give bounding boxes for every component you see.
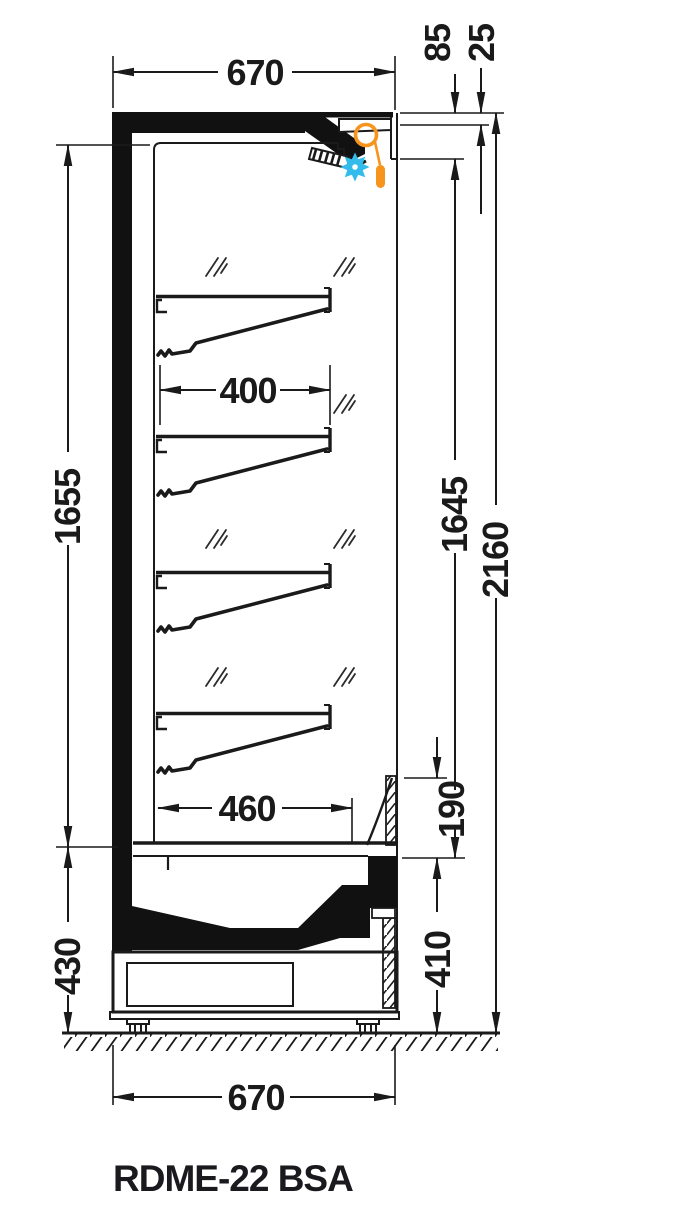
dim-canopy-depth: 85 (417, 23, 458, 113)
dim-base-rear-height: 430 (47, 847, 88, 1033)
leveling-foot (127, 1019, 149, 1033)
dim-label-deflector-height: 190 (431, 781, 472, 838)
dim-label-canopy-front: 25 (461, 23, 502, 62)
base-compartment (110, 952, 399, 1033)
dim-bottom-shelf-width: 460 (158, 788, 352, 843)
dim-label-base-rear-height: 430 (47, 938, 88, 995)
dim-label-opening-height: 1645 (434, 476, 475, 553)
dim-label-bottom-shelf-width: 460 (218, 788, 275, 829)
dim-base-front-height: 410 (417, 858, 458, 1033)
dim-label-bottom-width: 670 (227, 1077, 284, 1118)
dim-deflector-height: 190 (431, 737, 472, 838)
front-kick-grille (383, 918, 395, 1008)
shelf (156, 564, 330, 632)
dim-label-canopy-depth: 85 (417, 23, 458, 62)
dim-shelf-width: 400 (160, 365, 330, 425)
dim-bottom-width: 670 (113, 1045, 395, 1118)
shelf (156, 428, 330, 496)
dim-interior-height: 1655 (47, 145, 88, 847)
dim-label-top-width: 670 (226, 52, 283, 93)
ground-line (62, 1033, 500, 1051)
air-duct (132, 856, 397, 950)
shelves (156, 288, 330, 773)
cabinet-structure (62, 112, 500, 1051)
model-title: RDME-22 BSA (113, 1158, 353, 1199)
dim-opening-height: 1645 (434, 159, 475, 858)
technical-drawing-page: 670 85 1645 25 2160 (0, 0, 680, 1218)
shelf (156, 705, 330, 773)
snowflake-icon (341, 153, 370, 182)
shelf (156, 288, 330, 356)
dim-total-height: 2160 (475, 113, 516, 1033)
dim-label-base-front-height: 410 (417, 931, 458, 988)
dim-label-interior-height: 1655 (47, 468, 88, 545)
dim-label-shelf-width: 400 (219, 370, 276, 411)
cabinet-cross-section-drawing: 670 85 1645 25 2160 (0, 0, 680, 1218)
rear-wall (112, 112, 132, 952)
air-deflector (367, 776, 396, 845)
dim-label-total-height: 2160 (475, 522, 516, 598)
bottom-deck (133, 843, 397, 870)
dim-top-width: 670 (113, 52, 395, 110)
leveling-foot (357, 1019, 379, 1033)
